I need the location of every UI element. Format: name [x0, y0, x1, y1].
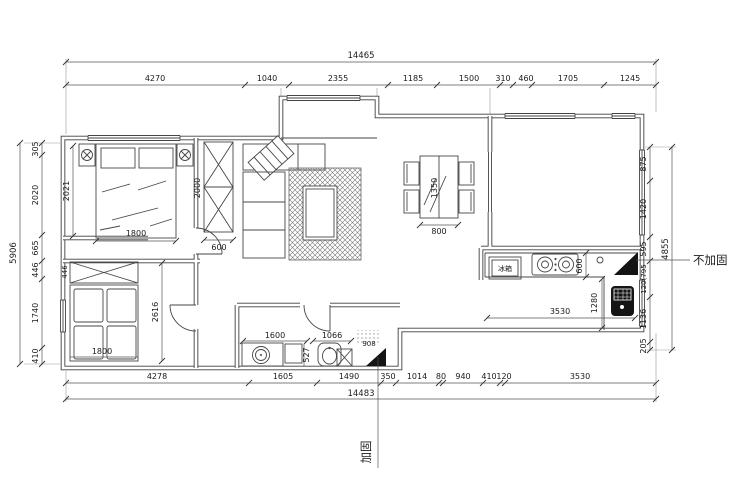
shower-tray	[285, 344, 302, 363]
kitchen	[484, 250, 638, 331]
dim-wardrobe-h: 2000	[193, 178, 202, 198]
dim-top-overall: 14465	[347, 51, 374, 61]
dim-right-5: 205	[639, 338, 648, 353]
dim-left-3: 446	[31, 262, 40, 277]
dim-dining-width: 800	[431, 227, 446, 236]
chair	[404, 190, 419, 213]
dim-master-depth: 2021	[62, 181, 71, 201]
sofa	[243, 172, 285, 258]
dim-dining-table: 1350	[430, 178, 439, 198]
reinforced-label: 加固	[359, 441, 373, 464]
bed	[96, 144, 176, 238]
dim-left-0: 305	[31, 141, 40, 156]
dim-counter-depth: 600	[575, 258, 584, 273]
dim-top-3: 1185	[403, 74, 423, 83]
dim-toilet: 1066	[322, 331, 342, 340]
master-bedroom	[70, 142, 236, 244]
dim-left-1: 2020	[31, 185, 40, 205]
coffee-table	[303, 186, 337, 240]
floor-plan-canvas: 14465 4270 1040 2355 1185 1500 310 460 1…	[0, 0, 740, 487]
dim-top-0: 4270	[145, 74, 165, 83]
dim-right-3: 120(795	[640, 264, 648, 293]
dim-tatami: 1800	[92, 347, 112, 356]
dim-top-1: 1040	[257, 74, 277, 83]
dim-bottom-6: 940	[455, 372, 470, 381]
dim-top-4: 1500	[459, 74, 479, 83]
chair	[459, 190, 474, 213]
bathroom	[240, 330, 386, 366]
hood-marker	[597, 257, 603, 263]
dim-bottom-3: 350	[380, 372, 395, 381]
not-reinforced-label: 不加固	[693, 253, 728, 267]
dim-left-4: 1740	[31, 303, 40, 323]
sink	[611, 286, 634, 316]
dim-bottom-9: 3530	[570, 372, 590, 381]
dim-bottom-4: 1014	[407, 372, 427, 381]
dim-top-2: 2355	[328, 74, 348, 83]
dim-top-7: 1705	[558, 74, 578, 83]
fridge-label: 冰箱	[498, 264, 512, 273]
dim-right-0: 875	[639, 156, 648, 171]
sofa-cushion	[248, 136, 294, 181]
dim-bottom-0: 4278	[147, 372, 167, 381]
dim-left-overall: 5906	[9, 242, 19, 264]
dim-bottom-2: 1490	[339, 372, 359, 381]
dim-top-6: 460	[518, 74, 533, 83]
dim-counter-run: 3530	[550, 307, 570, 316]
chair	[404, 162, 419, 185]
dim-bottom-7: 410	[481, 372, 496, 381]
dim-bottom-8: 120	[496, 372, 511, 381]
reinforce-flag-kitchen	[614, 252, 638, 275]
dim-wardrobe-w: 600	[211, 243, 226, 252]
dim-bottom-5: 80	[436, 372, 446, 381]
reinforce-flag-bath	[366, 348, 386, 366]
toilet	[318, 343, 341, 366]
dim-right-2: 595	[639, 241, 648, 256]
dim-right-overall: 4855	[661, 238, 671, 260]
floor-plan-drawing: 14465 4270 1040 2355 1185 1500 310 460 1…	[0, 0, 740, 487]
dining-area	[404, 156, 474, 228]
living-room	[243, 136, 361, 260]
dim-left-2: 665	[31, 240, 40, 255]
dim-bed2-depth: 2616	[151, 302, 160, 322]
dim-left-5: 410	[31, 348, 40, 363]
dim-wardrobe2: 446	[61, 265, 69, 279]
dim-bottom-overall: 14483	[347, 389, 374, 399]
dim-vanity-depth: 527	[302, 347, 311, 362]
pillow-right	[139, 148, 173, 168]
dim-vanity: 1600	[265, 331, 285, 340]
dim-master-bed: 1800	[126, 229, 146, 238]
dim-top-5: 310	[495, 74, 510, 83]
dim-bottom-1: 1605	[273, 372, 293, 381]
dim-niche: 908	[362, 340, 375, 348]
dim-right-1: 1420	[639, 199, 648, 219]
dim-top-8: 1245	[620, 74, 640, 83]
dim-side-run: 1280	[590, 293, 599, 313]
dim-right-4: 1136	[639, 309, 648, 329]
pillow-left	[101, 148, 135, 168]
chair	[459, 162, 474, 185]
